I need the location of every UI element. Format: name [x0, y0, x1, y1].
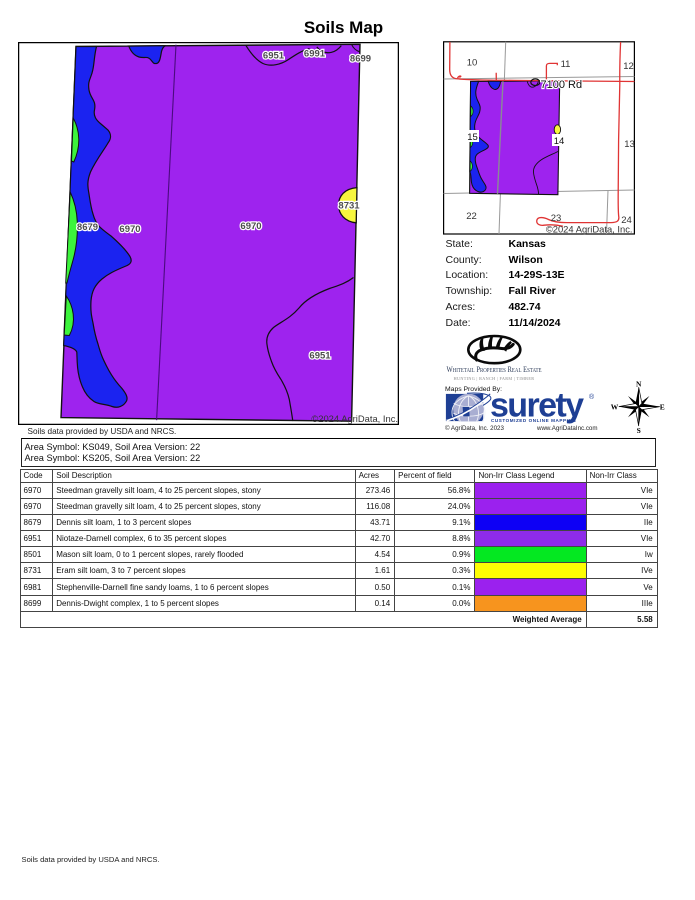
- svg-text:14: 14: [554, 136, 565, 147]
- svg-text:12: 12: [623, 61, 634, 72]
- svg-text:6970: 6970: [240, 221, 261, 232]
- svg-text:©2024 AgriData, Inc.: ©2024 AgriData, Inc.: [546, 224, 633, 235]
- svg-text:10: 10: [467, 58, 478, 69]
- svg-text:CUSTOMIZED ONLINE MAPPING: CUSTOMIZED ONLINE MAPPING: [491, 418, 576, 423]
- svg-text:S: S: [637, 426, 641, 435]
- svg-text:8699: 8699: [350, 54, 371, 65]
- svg-text:7100 Rd: 7100 Rd: [541, 79, 583, 91]
- svg-text:8731: 8731: [338, 201, 360, 212]
- svg-text:8679: 8679: [77, 222, 98, 233]
- svg-text:11: 11: [561, 59, 571, 70]
- svg-text:W: W: [611, 403, 619, 412]
- svg-text:®: ®: [589, 393, 595, 401]
- svg-text:6951: 6951: [263, 51, 285, 62]
- svg-text:22: 22: [466, 211, 477, 222]
- svg-text:E: E: [660, 403, 665, 412]
- svg-text:N: N: [636, 379, 642, 388]
- svg-text:23: 23: [551, 213, 562, 224]
- svg-text:6970: 6970: [119, 224, 140, 235]
- svg-text:15: 15: [467, 132, 478, 143]
- svg-text:6951: 6951: [309, 351, 331, 362]
- svg-text:©2024 AgriData, Inc.: ©2024 AgriData, Inc.: [311, 413, 398, 424]
- svg-text:13: 13: [624, 139, 635, 150]
- svg-text:6991: 6991: [304, 49, 326, 60]
